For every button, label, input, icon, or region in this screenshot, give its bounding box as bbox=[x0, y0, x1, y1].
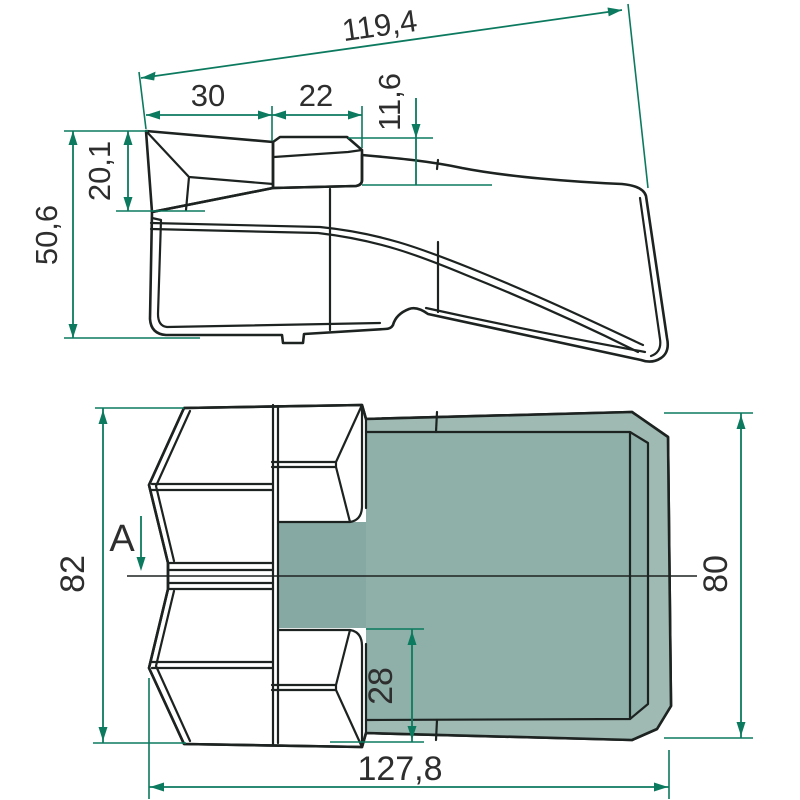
plan-boss-lower bbox=[272, 630, 366, 747]
plan-center-channel bbox=[278, 522, 366, 628]
side-body-ridge-lower bbox=[151, 229, 638, 352]
side-view: 119,4 30 22 11,6 20,1 bbox=[29, 3, 668, 362]
side-blade-face bbox=[146, 131, 273, 212]
side-view-dimensions: 119,4 30 22 11,6 20,1 bbox=[29, 3, 648, 338]
technical-drawing-page: 119,4 30 22 11,6 20,1 bbox=[0, 0, 800, 800]
side-blade-chamfer-lines bbox=[146, 131, 273, 210]
side-boss-face bbox=[273, 137, 362, 188]
dim-body-width-label: 80 bbox=[697, 555, 735, 593]
plan-blade-ridge-upper bbox=[152, 484, 272, 490]
side-boss-top-edge-line bbox=[274, 150, 362, 157]
plan-edge-tick-bottom bbox=[436, 720, 437, 740]
tooth-drawing-canvas: 119,4 30 22 11,6 20,1 bbox=[0, 0, 800, 800]
plan-boss-upper bbox=[272, 405, 366, 522]
dim-overall-length-label: 127,8 bbox=[357, 750, 442, 788]
side-body-inner-chamfer bbox=[152, 218, 380, 327]
plan-blade-ridge-lower bbox=[152, 662, 272, 668]
section-label-a: A bbox=[109, 518, 135, 560]
dim-tip-length-label: 30 bbox=[191, 78, 225, 113]
dim-wing-width-label: 28 bbox=[362, 667, 400, 705]
dim-boss-step-height-label: 11,6 bbox=[372, 73, 407, 131]
plan-view: 82 80 28 127,8 A bbox=[54, 405, 753, 799]
dim-overall-diagonal-label: 119,4 bbox=[340, 3, 419, 48]
dim-blade-width-label: 82 bbox=[54, 555, 92, 593]
dim-overall-height-label: 50,6 bbox=[29, 205, 64, 265]
dim-tip-height-label: 20,1 bbox=[82, 141, 117, 201]
side-top-edge-tick bbox=[437, 160, 438, 169]
side-body-face bbox=[150, 155, 668, 362]
dim-boss-length-label: 22 bbox=[299, 78, 333, 113]
plan-step-lines bbox=[273, 405, 278, 744]
plan-edge-tick-top bbox=[436, 412, 437, 432]
